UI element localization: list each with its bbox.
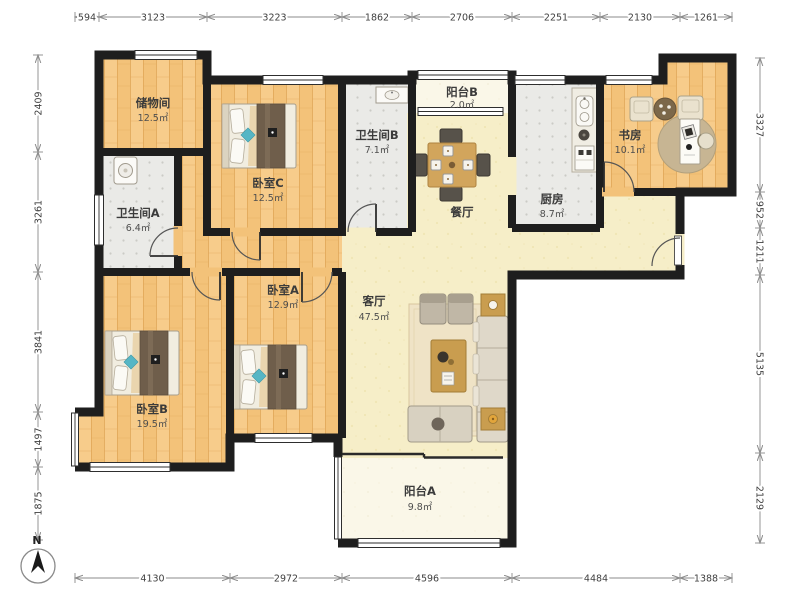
area-bathroom-b: 7.1㎡ xyxy=(365,145,390,156)
dimension-top: 594 3123 3223 1862 2706 2251 2130 1261 xyxy=(75,12,732,24)
area-storage: 12.5㎡ xyxy=(138,113,169,124)
window-balcony-a-left xyxy=(335,457,342,539)
area-study: 10.1㎡ xyxy=(615,145,646,156)
window-kitchen-top xyxy=(515,76,565,85)
area-kitchen: 8.7㎡ xyxy=(540,209,565,220)
window-bathroom-a-left xyxy=(95,195,104,245)
window-bedroom-b-bottom xyxy=(90,463,170,472)
label-living: 客厅 xyxy=(362,294,386,308)
kitchen-cabinet xyxy=(575,146,594,170)
floor-plan: 储物间 12.5㎡ 卧室C 12.5㎡ 卫生间A 6.4㎡ 卫生间B 7.1㎡ … xyxy=(0,0,800,600)
dim-right-1: 952 xyxy=(754,201,765,219)
area-bedroom-a: 12.9㎡ xyxy=(268,300,299,311)
entry-floor xyxy=(600,192,680,275)
area-living: 47.5㎡ xyxy=(359,312,390,323)
window-balcony-b-top xyxy=(418,71,508,80)
kitchen-opening xyxy=(508,157,517,195)
bed-bedroom-b xyxy=(105,331,179,395)
dim-left-2: 3841 xyxy=(34,330,45,354)
study-door-gap xyxy=(602,188,634,197)
dim-top-7: 1261 xyxy=(694,13,718,24)
window-storage-top xyxy=(135,51,197,60)
dim-right-4: 2129 xyxy=(754,486,765,510)
label-balcony-a: 阳台A xyxy=(404,484,436,498)
label-bedroom-b: 卧室B xyxy=(136,402,168,416)
dim-bottom-4: 1388 xyxy=(694,574,718,585)
label-kitchen: 厨房 xyxy=(541,192,564,206)
sofa-set xyxy=(408,294,508,442)
corridor-nook-floor xyxy=(178,152,207,232)
dim-right-3: 5135 xyxy=(754,352,765,376)
dim-bottom-1: 2972 xyxy=(274,574,298,585)
window-bedroom-c-top xyxy=(263,76,323,85)
window-bedroom-b-left xyxy=(72,413,79,466)
bedroom-b-door-gap xyxy=(190,268,222,277)
label-dining: 餐厅 xyxy=(450,205,474,219)
washing-machine xyxy=(114,157,137,184)
dim-bottom-0: 4130 xyxy=(140,574,164,585)
floorplan-page: 储物间 12.5㎡ 卧室C 12.5㎡ 卫生间A 6.4㎡ 卫生间B 7.1㎡ … xyxy=(0,0,800,600)
dim-top-3: 1862 xyxy=(365,13,389,24)
dim-top-1: 3123 xyxy=(141,13,165,24)
dim-left-3: 1497 xyxy=(34,427,45,451)
dimension-bottom: 4130 2972 4596 4484 1388 xyxy=(75,573,732,585)
area-balcony-a: 9.8㎡ xyxy=(408,502,433,513)
window-study-top xyxy=(606,76,652,85)
label-bathroom-b: 卫生间B xyxy=(355,128,398,142)
dim-top-5: 2251 xyxy=(544,13,568,24)
dimension-right: 3327 952 1211 5135 2129 xyxy=(754,58,766,543)
bedroom-c-door-gap xyxy=(230,228,260,237)
dim-left-1: 3261 xyxy=(34,200,45,224)
dim-top-6: 2130 xyxy=(628,13,652,24)
window-bedroom-a-bottom xyxy=(255,434,312,443)
label-bedroom-c: 卧室C xyxy=(252,176,283,190)
bed-bedroom-c xyxy=(222,104,296,168)
label-bathroom-a: 卫生间A xyxy=(116,206,159,220)
compass: N xyxy=(21,534,55,583)
bathroom-b-vanity xyxy=(376,87,408,103)
area-bathroom-a: 6.4㎡ xyxy=(126,223,151,234)
kitchen-counter xyxy=(572,88,597,172)
label-study: 书房 xyxy=(619,128,642,142)
dim-bottom-2: 4596 xyxy=(415,574,439,585)
round-table xyxy=(654,98,676,120)
compass-north-label: N xyxy=(32,534,41,547)
bathroom-a-door-gap xyxy=(174,226,183,256)
area-bedroom-b: 19.5㎡ xyxy=(137,419,168,430)
bedroom-a-door-gap xyxy=(300,268,332,277)
dim-left-0: 2409 xyxy=(34,91,45,115)
dim-top-0: 594 xyxy=(78,13,96,24)
window-balcony-a-bottom xyxy=(358,539,500,548)
area-bedroom-c: 12.5㎡ xyxy=(253,193,284,204)
bathroom-b-door-gap xyxy=(346,228,376,237)
dim-left-4: 1875 xyxy=(34,491,45,515)
dimension-left: 2409 3261 3841 1497 1875 xyxy=(33,55,45,540)
dim-right-2: 1211 xyxy=(754,239,765,263)
dim-bottom-3: 4484 xyxy=(584,574,608,585)
label-storage: 储物间 xyxy=(136,96,171,110)
dim-top-2: 3223 xyxy=(262,13,286,24)
dim-top-4: 2706 xyxy=(450,13,474,24)
label-bedroom-a: 卧室A xyxy=(267,283,299,297)
area-balcony-b: 2.0㎡ xyxy=(450,100,475,111)
label-balcony-b: 阳台B xyxy=(446,85,478,99)
bed-bedroom-a xyxy=(233,345,307,409)
dim-right-0: 3327 xyxy=(754,113,765,137)
room-balcony-a-floor xyxy=(338,453,512,543)
